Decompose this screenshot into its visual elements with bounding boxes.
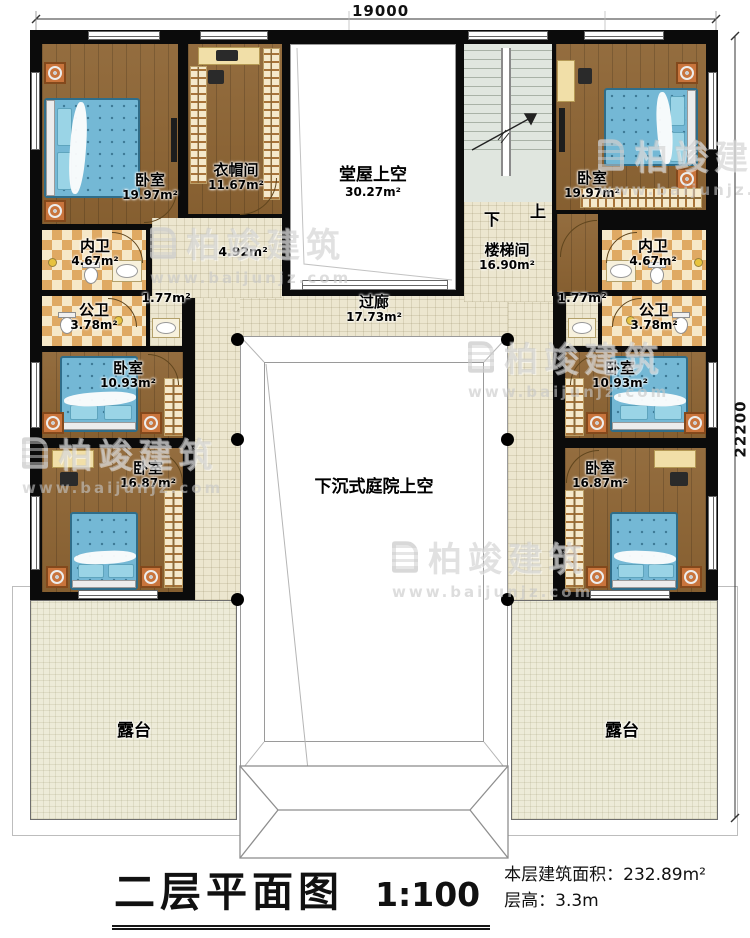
floor-plan: 19000 22200 bbox=[0, 0, 750, 938]
label-bedroom-tl: 卧室 19.97m² bbox=[122, 172, 178, 203]
column-dot-5 bbox=[231, 593, 244, 606]
title-underline: 二层平面图 1:100 bbox=[112, 858, 490, 930]
window-top-1 bbox=[88, 31, 160, 40]
bed-tl-headboard bbox=[46, 100, 55, 196]
lamp-inner-r bbox=[694, 258, 703, 267]
label-stair-up: 上 bbox=[530, 198, 546, 222]
window-left-3 bbox=[31, 496, 40, 570]
bed-br-pillow-2 bbox=[648, 564, 674, 578]
pc-bl bbox=[60, 472, 78, 486]
nightstand-tl-2 bbox=[44, 200, 66, 222]
window-right-3 bbox=[708, 496, 717, 570]
label-bedroom-tr: 卧室 19.97m² bbox=[564, 170, 620, 201]
nightstand-br-2 bbox=[586, 566, 608, 588]
nightstand-tr-1 bbox=[676, 62, 698, 84]
label-hall-void: 堂屋上空 30.27m² bbox=[339, 166, 407, 199]
label-corridor: 过廊 17.73m² bbox=[346, 294, 402, 325]
label-bedroom-br: 卧室 16.87m² bbox=[572, 460, 628, 491]
label-bath-inner-r: 内卫 4.67m² bbox=[629, 238, 676, 269]
label-bedroom-bl: 卧室 16.87m² bbox=[120, 460, 176, 491]
rack-ml bbox=[164, 378, 183, 436]
column-dot-6 bbox=[501, 593, 514, 606]
bed-bl-pillow-1 bbox=[78, 564, 104, 578]
window-top-3 bbox=[468, 31, 548, 40]
nightstand-tl-1 bbox=[44, 62, 66, 84]
desk-tr bbox=[557, 60, 575, 102]
window-top-2 bbox=[200, 31, 268, 40]
rack-br bbox=[565, 490, 584, 588]
closet-printer bbox=[216, 50, 238, 61]
courtyard-inner-rail bbox=[264, 362, 484, 742]
drawing-scale: 1:100 bbox=[375, 875, 480, 914]
window-left-2 bbox=[31, 362, 40, 428]
label-bath-public-r: 公卫 3.78m² bbox=[630, 302, 677, 333]
nightstand-bl-1 bbox=[46, 566, 68, 588]
label-bedroom-ml: 卧室 10.93m² bbox=[100, 360, 156, 391]
pc-br bbox=[670, 472, 688, 486]
label-bath-inner-l: 内卫 4.67m² bbox=[71, 238, 118, 269]
bed-ml-pillow-1 bbox=[70, 405, 98, 420]
window-right-2 bbox=[708, 362, 717, 428]
title-block: 二层平面图 1:100 本层建筑面积：232.89m² 层高：3.3m bbox=[112, 858, 706, 930]
hall-void-railing bbox=[302, 280, 448, 290]
bed-tr bbox=[604, 88, 698, 166]
label-closet: 衣帽间 11.67m² bbox=[208, 162, 264, 193]
nightstand-mr-2 bbox=[586, 412, 608, 434]
window-wing-bottom-r bbox=[590, 590, 670, 599]
bed-tr-pillow-1 bbox=[670, 96, 685, 126]
toilet-bowl bbox=[84, 267, 98, 284]
column-dot-3 bbox=[231, 433, 244, 446]
nightstand-br-1 bbox=[680, 566, 702, 588]
porch-roof bbox=[240, 766, 508, 858]
pc-tr bbox=[578, 68, 592, 84]
label-vanity-r: 1.77m² bbox=[557, 291, 606, 305]
column-dot-4 bbox=[501, 433, 514, 446]
window-left-1 bbox=[31, 72, 40, 150]
label-vanity-l: 1.77m² bbox=[141, 291, 190, 305]
closet-chair bbox=[208, 70, 224, 84]
nightstand-bl-2 bbox=[140, 566, 162, 588]
closet-rack-left bbox=[190, 66, 207, 184]
bed-bl-headboard bbox=[72, 580, 136, 588]
bed-bl bbox=[70, 512, 138, 590]
label-terrace-r: 露台 bbox=[605, 722, 639, 742]
desk-bl bbox=[52, 450, 94, 468]
desk-br bbox=[654, 450, 696, 468]
title-info: 本层建筑面积：232.89m² 层高：3.3m bbox=[504, 862, 706, 915]
sink-vanity-l bbox=[152, 318, 180, 338]
sink-vanity-r bbox=[568, 318, 596, 338]
rack-mr bbox=[565, 378, 584, 436]
stair-handrail bbox=[501, 48, 511, 176]
bed-mr-headboard bbox=[612, 422, 686, 430]
floor-height-text: 层高：3.3m bbox=[504, 891, 599, 911]
bed-bl-pillow-2 bbox=[108, 564, 134, 578]
dimension-top: 19000 bbox=[352, 2, 409, 20]
window-right-1 bbox=[708, 72, 717, 150]
tv-tl bbox=[171, 118, 177, 162]
nightstand-ml-1 bbox=[42, 412, 64, 434]
column-dot-1 bbox=[231, 333, 244, 346]
bed-ml-pillow-2 bbox=[104, 405, 132, 420]
label-stair-down: 下 bbox=[484, 206, 500, 230]
bed-ml-headboard bbox=[62, 422, 136, 430]
label-courtyard: 下沉式庭院上空 bbox=[315, 478, 434, 498]
bed-tr-headboard bbox=[687, 90, 696, 164]
label-bath-public-l: 公卫 3.78m² bbox=[70, 302, 117, 333]
label-bedroom-mr: 卧室 10.93m² bbox=[592, 360, 648, 391]
column-dot-2 bbox=[501, 333, 514, 346]
bed-br-pillow-1 bbox=[618, 564, 644, 578]
bed-br-headboard bbox=[612, 580, 676, 588]
toilet-bowl bbox=[650, 267, 664, 284]
label-terrace-l: 露台 bbox=[117, 722, 151, 742]
nightstand-mr-1 bbox=[684, 412, 706, 434]
nightstand-ml-2 bbox=[140, 412, 162, 434]
nightstand-tr-2 bbox=[676, 168, 698, 190]
room-terrace-l bbox=[30, 600, 237, 820]
bed-mr-pillow-1 bbox=[620, 405, 648, 420]
window-top-4 bbox=[584, 31, 664, 40]
bed-mr-pillow-2 bbox=[654, 405, 682, 420]
window-wing-bottom-l bbox=[78, 590, 158, 599]
rack-bl bbox=[164, 490, 183, 588]
room-terrace-r bbox=[511, 600, 718, 820]
floor-area-text: 本层建筑面积：232.89m² bbox=[504, 865, 706, 885]
lamp-inner-l bbox=[48, 258, 57, 267]
corridor-right-leg bbox=[508, 296, 553, 600]
tv-tr bbox=[559, 108, 565, 152]
page-title: 二层平面图 bbox=[114, 868, 344, 916]
label-stair-hall: 楼梯间 16.90m² bbox=[479, 242, 535, 273]
dimension-right: 22200 bbox=[732, 400, 750, 457]
bed-br bbox=[610, 512, 678, 590]
label-corridor-small: 4.92m² bbox=[218, 245, 267, 259]
